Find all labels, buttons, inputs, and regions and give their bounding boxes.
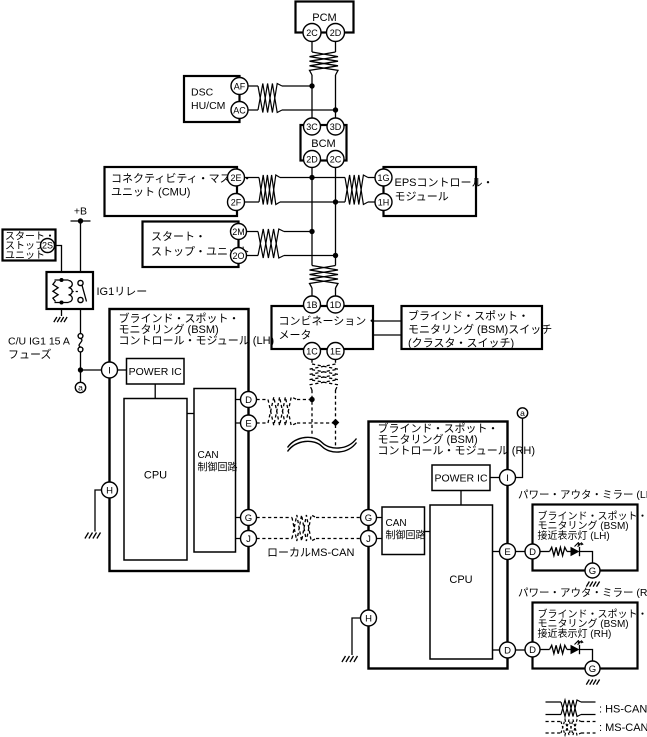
svg-text:G: G (365, 513, 372, 524)
svg-text:1C: 1C (306, 346, 318, 356)
svg-text:モニタリング (BSM): モニタリング (BSM) (378, 432, 478, 446)
svg-text:IG1リレー: IG1リレー (97, 286, 148, 298)
svg-text:D: D (504, 645, 511, 656)
svg-text:a: a (78, 383, 83, 393)
svg-text:CPU: CPU (144, 470, 167, 482)
svg-text:モニタリング (BSM): モニタリング (BSM) (119, 322, 219, 336)
svg-text:制御回路: 制御回路 (386, 529, 426, 542)
svg-text:2D: 2D (330, 28, 342, 38)
svg-text:2D: 2D (306, 154, 318, 164)
svg-text:2C: 2C (306, 28, 318, 38)
svg-text:D: D (245, 395, 252, 406)
svg-text:ローカルMS-CAN: ローカルMS-CAN (267, 546, 354, 559)
svg-text:POWER IC: POWER IC (129, 366, 183, 378)
svg-text:パワー・アウタ・ミラー (RH): パワー・アウタ・ミラー (RH) (518, 587, 647, 599)
svg-text:I: I (506, 473, 509, 484)
svg-text:J: J (366, 534, 371, 545)
svg-text:CAN: CAN (386, 518, 407, 529)
svg-text:1G: 1G (377, 173, 389, 183)
svg-text:E: E (245, 418, 251, 429)
svg-text:E: E (504, 547, 510, 558)
svg-text:メータ: メータ (279, 329, 312, 342)
svg-text:AC: AC (233, 105, 246, 115)
svg-text:J: J (246, 534, 251, 545)
svg-text:DSC: DSC (191, 87, 214, 99)
svg-text:D: D (529, 645, 536, 656)
svg-text:2C: 2C (330, 154, 342, 164)
svg-text:I: I (108, 365, 111, 376)
svg-text:G: G (245, 513, 252, 524)
svg-text:コントロール・モジュール (RH): コントロール・モジュール (RH) (378, 445, 536, 457)
svg-text:2F: 2F (231, 197, 242, 207)
svg-text:AF: AF (234, 81, 246, 91)
svg-text:EPSコントロール・: EPSコントロール・ (395, 177, 494, 189)
svg-text:a: a (520, 408, 525, 418)
svg-text:PCM: PCM (312, 12, 336, 24)
svg-text:2S: 2S (42, 241, 53, 251)
svg-text:1E: 1E (330, 346, 341, 356)
svg-text:: MS-CAN: : MS-CAN (599, 722, 647, 734)
svg-text:パワー・アウタ・ミラー (LH): パワー・アウタ・ミラー (LH) (518, 489, 647, 501)
svg-text:2O: 2O (232, 251, 244, 261)
svg-text:POWER IC: POWER IC (434, 473, 488, 485)
svg-text:D: D (529, 547, 536, 558)
svg-text:: HS-CAN: : HS-CAN (599, 704, 647, 716)
svg-text:モジュール: モジュール (395, 191, 449, 203)
svg-text:モニタリング (BSM)スイッチ: モニタリング (BSM)スイッチ (408, 322, 552, 336)
svg-text:2M: 2M (232, 227, 245, 237)
svg-text:ユニット (CMU): ユニット (CMU) (111, 187, 190, 199)
svg-text:+B: +B (74, 206, 87, 218)
svg-text:H: H (106, 485, 113, 496)
svg-text:1B: 1B (306, 300, 317, 310)
svg-text:CAN: CAN (198, 450, 219, 461)
svg-text:G: G (589, 664, 596, 675)
svg-text:(クラスタ・スイッチ): (クラスタ・スイッチ) (408, 337, 514, 350)
svg-text:CPU: CPU (449, 574, 472, 586)
svg-text:制御回路: 制御回路 (198, 461, 238, 474)
svg-text:HU/CM: HU/CM (191, 100, 225, 112)
svg-text:ブラインド・スポット・: ブラインド・スポット・ (378, 421, 499, 435)
svg-text:C/U IG1 15 A: C/U IG1 15 A (8, 336, 70, 348)
svg-text:ユニット: ユニット (5, 251, 45, 262)
svg-text:1H: 1H (378, 197, 390, 207)
svg-text:フューズ: フューズ (8, 347, 51, 361)
svg-text:コントロール・モジュール (LH): コントロール・モジュール (LH) (119, 335, 275, 347)
svg-text:コンビネーション・: コンビネーション・ (279, 315, 378, 328)
svg-text:接近表示灯 (RH): 接近表示灯 (RH) (538, 627, 612, 640)
svg-text:スタート・: スタート・ (151, 230, 206, 243)
svg-text:接近表示灯 (LH): 接近表示灯 (LH) (538, 529, 610, 542)
svg-text:H: H (365, 613, 372, 624)
svg-text:1D: 1D (330, 300, 342, 310)
svg-text:ブラインド・スポット・: ブラインド・スポット・ (408, 309, 529, 323)
svg-text:BCM: BCM (311, 138, 335, 150)
svg-text:3C: 3C (306, 122, 318, 132)
svg-text:ブラインド・スポット・: ブラインド・スポット・ (119, 311, 240, 325)
svg-text:G: G (589, 566, 596, 577)
svg-text:3D: 3D (330, 122, 342, 132)
svg-text:2E: 2E (230, 173, 241, 183)
